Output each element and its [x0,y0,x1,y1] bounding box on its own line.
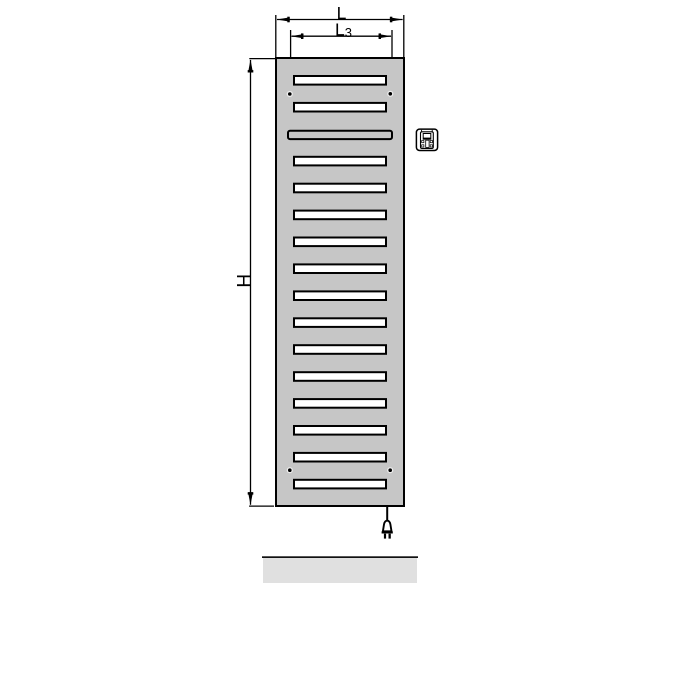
svg-text:H: H [234,274,255,288]
